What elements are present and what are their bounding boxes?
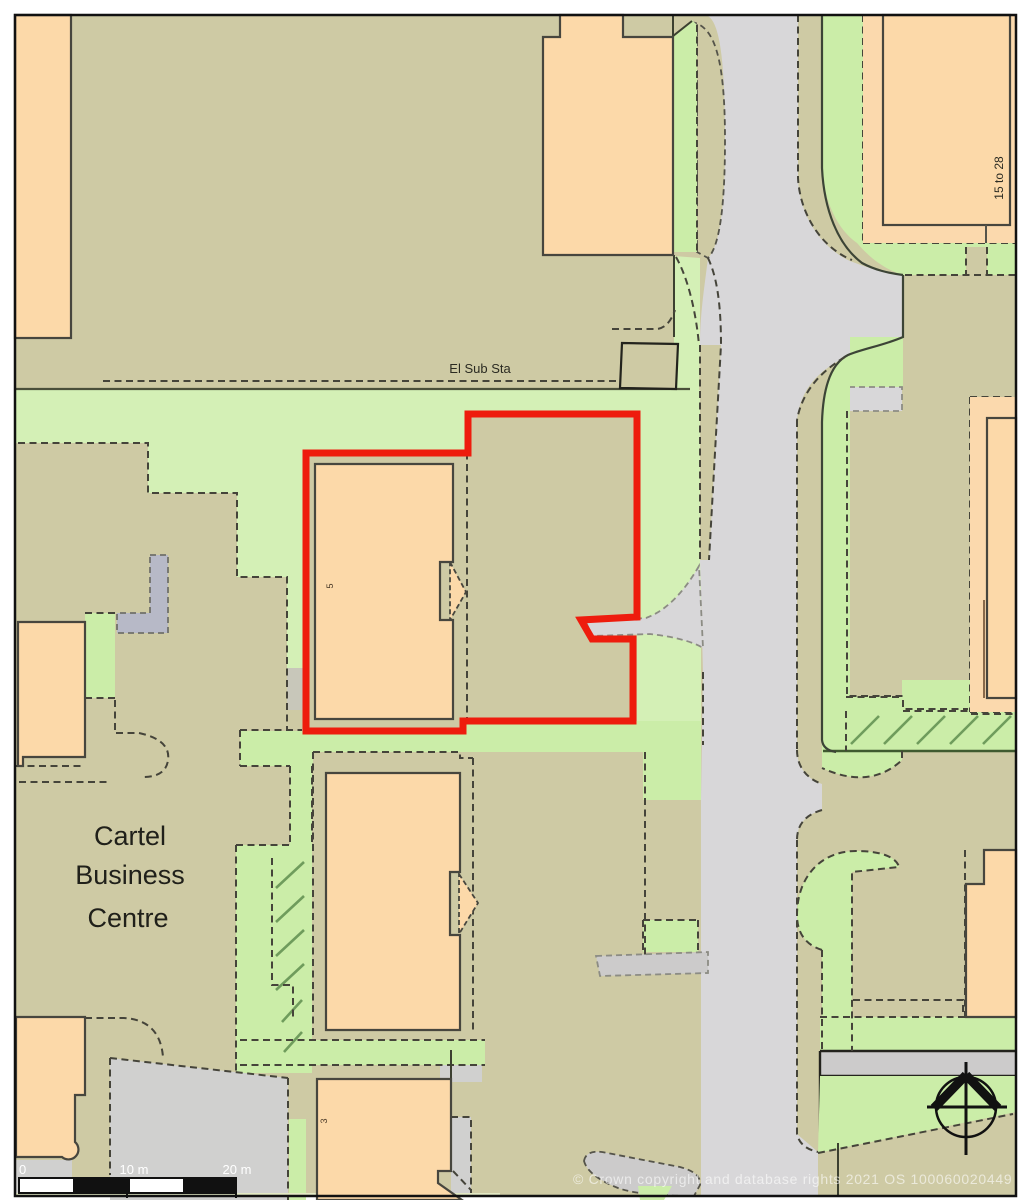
svg-text:10 m: 10 m	[120, 1162, 149, 1177]
svg-text:15 to 28: 15 to 28	[992, 156, 1006, 200]
svg-text:Cartel: Cartel	[94, 821, 166, 851]
svg-text:El Sub Sta: El Sub Sta	[449, 361, 511, 376]
svg-text:3: 3	[319, 1118, 329, 1123]
svg-text:Centre: Centre	[87, 903, 168, 933]
svg-text:Business: Business	[75, 860, 185, 890]
svg-text:0: 0	[19, 1162, 26, 1177]
svg-text:5: 5	[325, 583, 335, 588]
svg-text:20 m: 20 m	[223, 1162, 252, 1177]
svg-text:© Crown copyright and database: © Crown copyright and database rights 20…	[573, 1171, 1012, 1187]
